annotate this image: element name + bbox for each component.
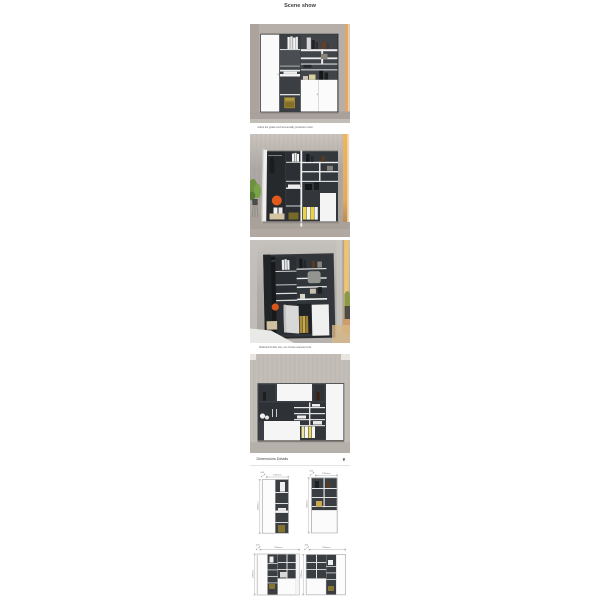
svg-text:1200mm: 1200mm <box>273 475 282 477</box>
svg-text:1800mm: 1800mm <box>258 501 260 510</box>
svg-text:1800mm: 1800mm <box>307 499 309 508</box>
svg-text:2000mm: 2000mm <box>301 569 303 578</box>
svg-text:400: 400 <box>256 545 260 547</box>
svg-text:2400mm: 2400mm <box>322 547 331 549</box>
svg-text:400: 400 <box>305 545 309 547</box>
svg-text:400: 400 <box>261 472 265 474</box>
svg-text:2400mm: 2400mm <box>274 547 283 549</box>
svg-text:400: 400 <box>310 470 314 472</box>
svg-text:1200mm: 1200mm <box>322 473 331 475</box>
svg-text:2000mm: 2000mm <box>253 569 255 578</box>
